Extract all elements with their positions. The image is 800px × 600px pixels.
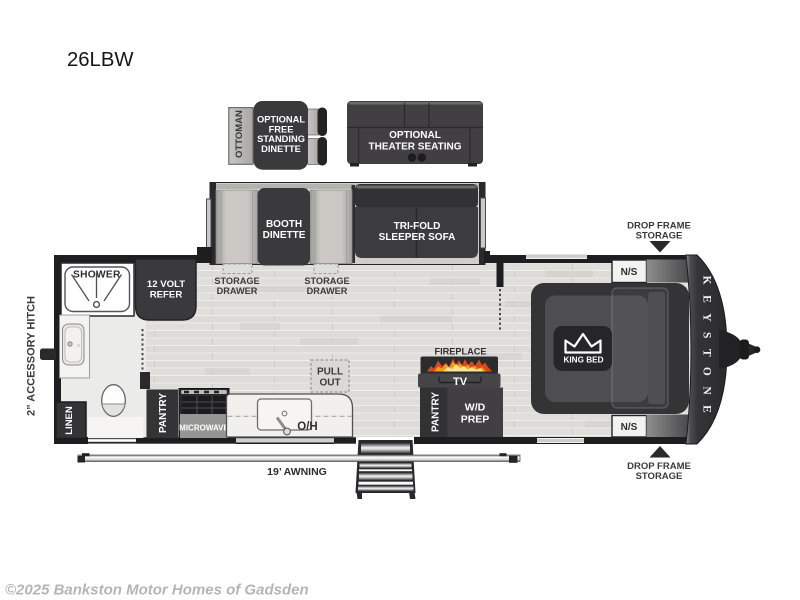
svg-text:OTTOMAN: OTTOMAN bbox=[234, 110, 245, 158]
svg-text:O/H: O/H bbox=[297, 421, 317, 433]
svg-text:STORAGE: STORAGE bbox=[636, 471, 683, 482]
svg-text:2” ACCESSORY HITCH: 2” ACCESSORY HITCH bbox=[26, 296, 38, 416]
svg-text:OUT: OUT bbox=[319, 378, 340, 389]
svg-text:KEYSTONE: KEYSTONE bbox=[701, 276, 713, 424]
svg-text:N/S: N/S bbox=[621, 267, 638, 278]
svg-text:12 VOLT: 12 VOLT bbox=[147, 279, 185, 290]
svg-text:STORAGE: STORAGE bbox=[636, 231, 683, 242]
svg-text:TV: TV bbox=[453, 376, 468, 388]
svg-text:PANTRY: PANTRY bbox=[158, 393, 169, 433]
svg-text:MICROWAVE: MICROWAVE bbox=[179, 424, 229, 433]
svg-text:DINETTE: DINETTE bbox=[263, 230, 306, 241]
svg-text:DINETTE: DINETTE bbox=[261, 144, 301, 154]
svg-text:PULL: PULL bbox=[317, 367, 343, 378]
svg-text:26LBW: 26LBW bbox=[67, 49, 134, 71]
svg-text:THEATER SEATING: THEATER SEATING bbox=[369, 142, 462, 153]
svg-text:KING BED: KING BED bbox=[563, 356, 603, 365]
svg-text:TRI-FOLD: TRI-FOLD bbox=[394, 221, 441, 232]
svg-text:W/D: W/D bbox=[465, 402, 486, 414]
svg-text:REFER: REFER bbox=[150, 290, 183, 301]
svg-text:STORAGE: STORAGE bbox=[304, 276, 349, 286]
svg-text:N/S: N/S bbox=[621, 422, 638, 433]
svg-text:DRAWER: DRAWER bbox=[307, 286, 348, 296]
svg-text:19’ AWNING: 19’ AWNING bbox=[267, 466, 327, 478]
svg-text:LINEN: LINEN bbox=[64, 406, 75, 435]
svg-text:FREE: FREE bbox=[269, 124, 294, 134]
svg-text:STANDING: STANDING bbox=[257, 134, 305, 144]
svg-text:OPTIONAL: OPTIONAL bbox=[389, 130, 441, 141]
svg-text:OPTIONAL: OPTIONAL bbox=[257, 115, 305, 125]
svg-text:BOOTH: BOOTH bbox=[266, 219, 302, 230]
svg-text:PANTRY: PANTRY bbox=[431, 392, 442, 432]
svg-text:STORAGE: STORAGE bbox=[214, 276, 259, 286]
svg-text:©2025 Bankston Motor Homes of: ©2025 Bankston Motor Homes of Gadsden bbox=[5, 582, 309, 599]
svg-text:PREP: PREP bbox=[461, 414, 490, 426]
svg-text:DRAWER: DRAWER bbox=[217, 286, 258, 296]
svg-text:FIREPLACE: FIREPLACE bbox=[434, 347, 486, 357]
svg-text:SLEEPER SOFA: SLEEPER SOFA bbox=[379, 232, 456, 243]
